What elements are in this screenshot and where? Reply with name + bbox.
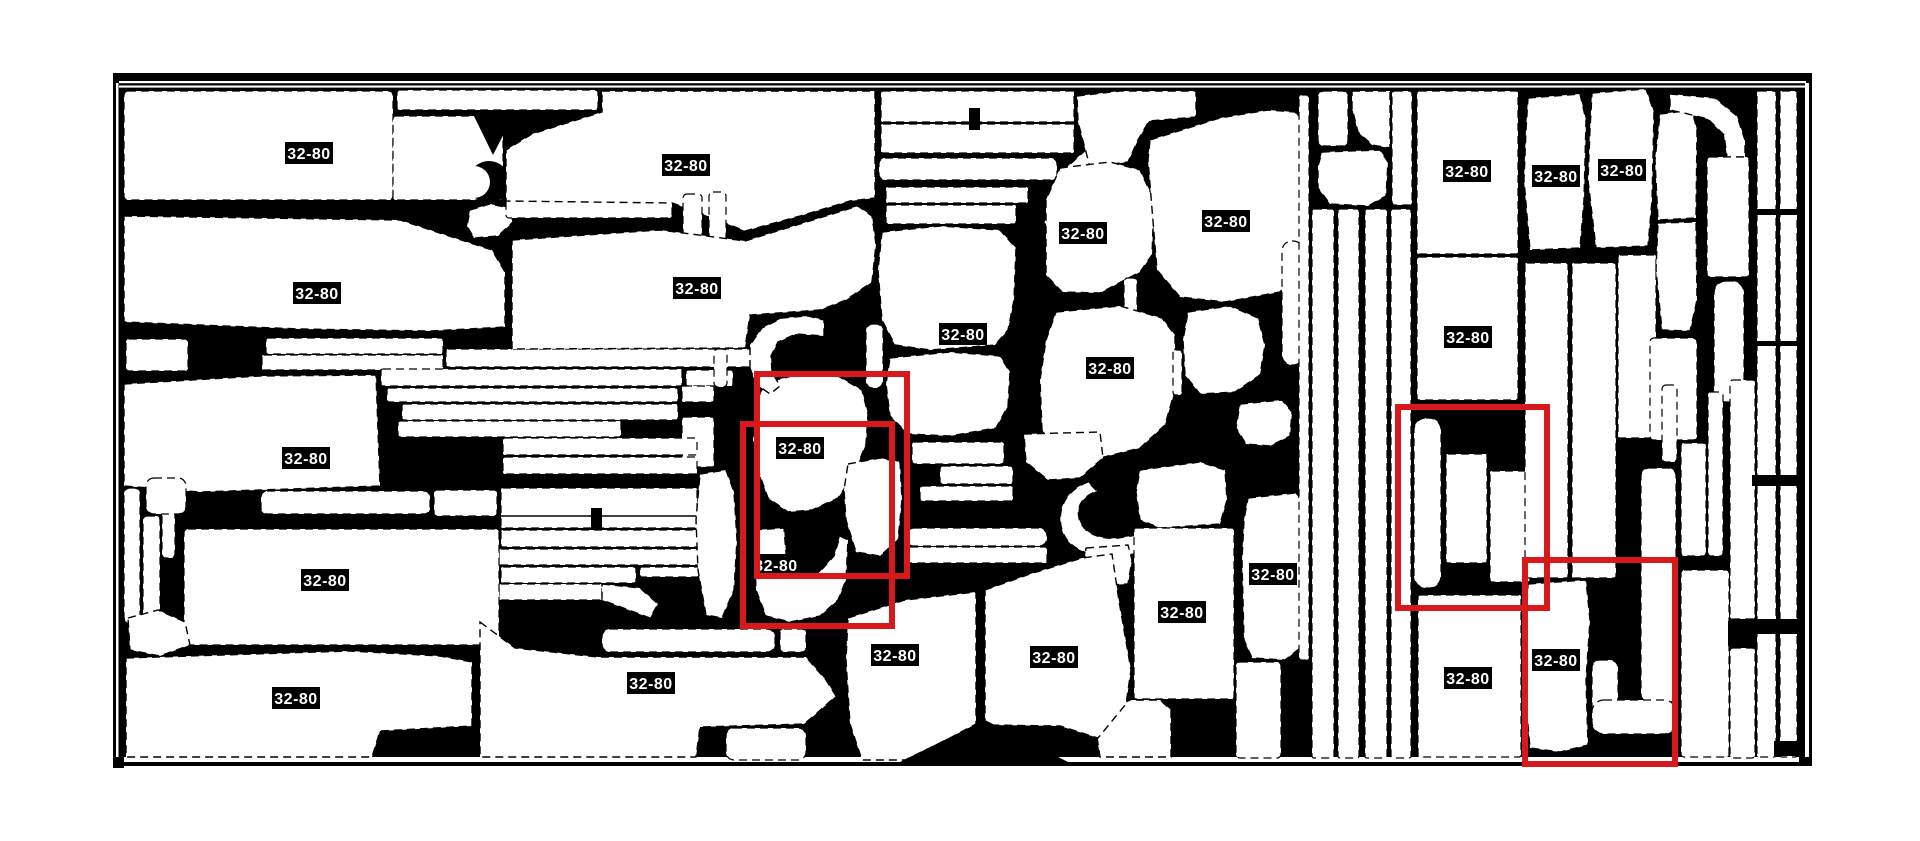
svg-text:32-80: 32-80 — [629, 676, 672, 693]
svg-text:32-80: 32-80 — [1088, 361, 1131, 378]
svg-text:32-80: 32-80 — [1032, 650, 1075, 667]
svg-text:32-80: 32-80 — [1251, 567, 1294, 584]
svg-text:32-80: 32-80 — [664, 158, 707, 175]
svg-text:32-80: 32-80 — [284, 451, 327, 468]
svg-text:32-80: 32-80 — [274, 691, 317, 708]
svg-text:32-80: 32-80 — [295, 286, 338, 303]
svg-text:32-80: 32-80 — [941, 327, 984, 344]
svg-text:32-80: 32-80 — [303, 573, 346, 590]
svg-text:32-80: 32-80 — [287, 146, 330, 163]
svg-text:32-80: 32-80 — [675, 281, 718, 298]
svg-text:32-80: 32-80 — [873, 648, 916, 665]
svg-text:32-80: 32-80 — [1160, 605, 1203, 622]
svg-text:32-80: 32-80 — [1204, 214, 1247, 231]
svg-text:32-80: 32-80 — [1446, 330, 1489, 347]
svg-text:32-80: 32-80 — [1600, 163, 1643, 180]
svg-text:32-80: 32-80 — [1061, 226, 1104, 243]
svg-text:32-80: 32-80 — [754, 558, 797, 575]
svg-text:32-80: 32-80 — [1534, 653, 1577, 670]
svg-text:32-80: 32-80 — [1534, 169, 1577, 186]
svg-text:32-80: 32-80 — [1446, 671, 1489, 688]
svg-text:32-80: 32-80 — [1445, 164, 1488, 181]
svg-text:32-80: 32-80 — [778, 441, 821, 458]
